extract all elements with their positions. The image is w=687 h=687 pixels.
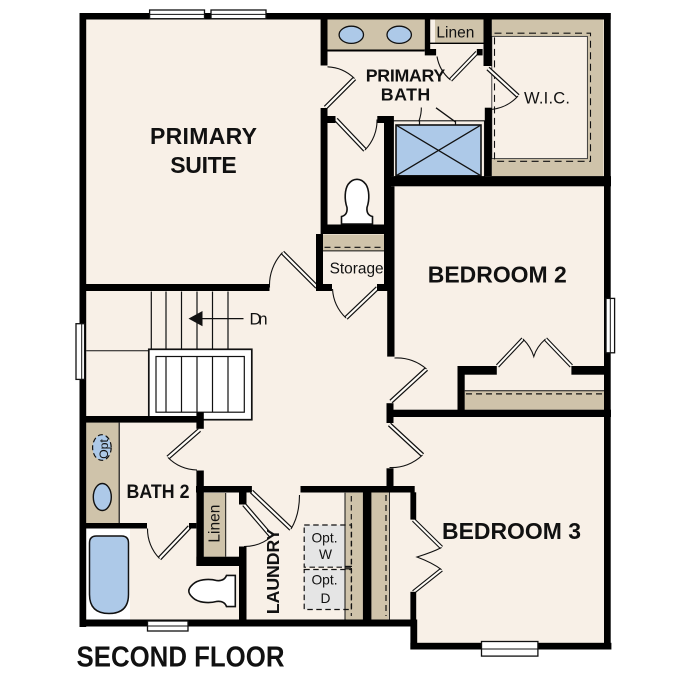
- svg-text:Opt.: Opt.: [311, 573, 337, 588]
- svg-text:Linen: Linen: [436, 25, 474, 42]
- svg-text:Storage: Storage: [330, 261, 384, 278]
- svg-text:W: W: [319, 547, 332, 562]
- svg-text:D: D: [321, 591, 331, 606]
- svg-text:BEDROOM 2: BEDROOM 2: [428, 262, 567, 288]
- svg-text:Linen: Linen: [206, 505, 223, 543]
- svg-text:Dn: Dn: [250, 310, 268, 328]
- svg-text:PRIMARY: PRIMARY: [366, 66, 446, 86]
- svg-text:BATH 2: BATH 2: [127, 481, 190, 503]
- svg-text:BEDROOM 3: BEDROOM 3: [442, 518, 581, 544]
- svg-text:Opt.: Opt.: [311, 530, 337, 545]
- svg-text:Opt.: Opt.: [97, 436, 111, 459]
- svg-text:SUITE: SUITE: [170, 152, 237, 178]
- svg-text:LAUNDRY: LAUNDRY: [263, 528, 283, 614]
- svg-text:PRIMARY: PRIMARY: [150, 123, 257, 149]
- svg-text:BATH: BATH: [381, 85, 431, 105]
- svg-text:W.I.C.: W.I.C.: [524, 89, 570, 107]
- svg-text:SECOND FLOOR: SECOND FLOOR: [77, 642, 285, 674]
